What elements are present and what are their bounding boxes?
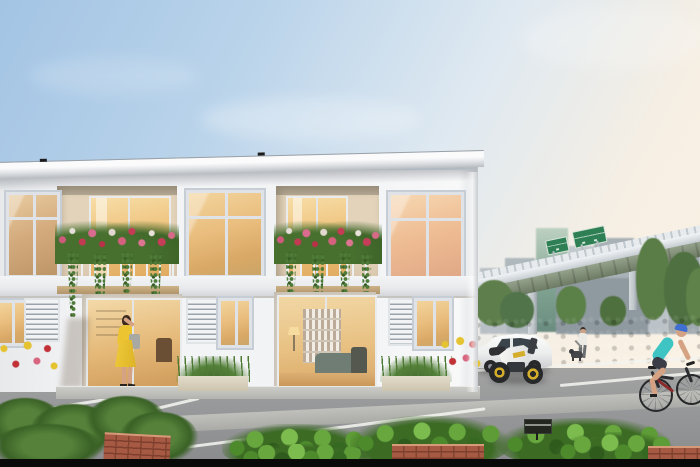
louver-panel-unit2 [388,298,416,346]
porch-unit2 [274,292,376,390]
scene-canvas [0,0,700,467]
woman-yellow-dress [110,312,148,392]
living-room-glass-door [277,295,377,389]
upper-window-unit1 [186,190,264,278]
roof-vent [40,159,47,162]
corner-trim [466,172,478,392]
female-cyclist [636,324,700,420]
motorcycle-handlebar [527,337,538,354]
dog [571,351,583,358]
interior-chair [156,338,172,362]
bicycle-front-wheel [676,374,700,405]
townhouse-building [0,148,480,398]
cloud [520,8,700,68]
cyclist-arm [677,339,691,361]
upper-window-unit2 [388,192,464,280]
garden-plaque [524,419,552,434]
plaque-stake [536,432,538,440]
cloud [30,58,200,94]
floor-lamp [288,327,300,335]
ground-window-unit1 [218,298,252,348]
louver-panel-unit1 [186,298,220,344]
man-walking-dog [574,327,594,365]
cloud [200,98,420,140]
flower-bush-left [0,330,62,392]
cyclist-shoe [650,394,657,397]
letterbox-bar [0,459,700,467]
armchair [351,347,367,375]
roof-vent [258,152,265,155]
white-sport-motorcycle [487,336,549,386]
bicycle-handlebar [686,361,695,367]
interior-floor [279,373,375,387]
woman-leg [127,367,132,384]
planter-box [178,376,248,391]
woman-leg [122,367,126,384]
upper-window-unit0 [6,192,60,278]
planter-box [382,376,450,391]
